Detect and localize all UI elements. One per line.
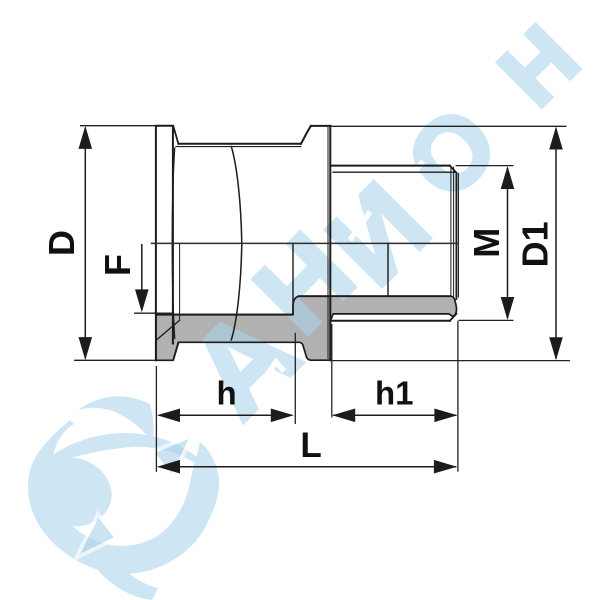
- svg-text:L: L: [300, 426, 321, 465]
- svg-text:M: M: [466, 228, 507, 258]
- svg-text:h: h: [217, 375, 237, 412]
- svg-text:D1: D1: [514, 221, 555, 267]
- svg-text:F: F: [97, 254, 138, 276]
- svg-text:h1: h1: [375, 375, 414, 412]
- svg-text:D: D: [41, 230, 82, 256]
